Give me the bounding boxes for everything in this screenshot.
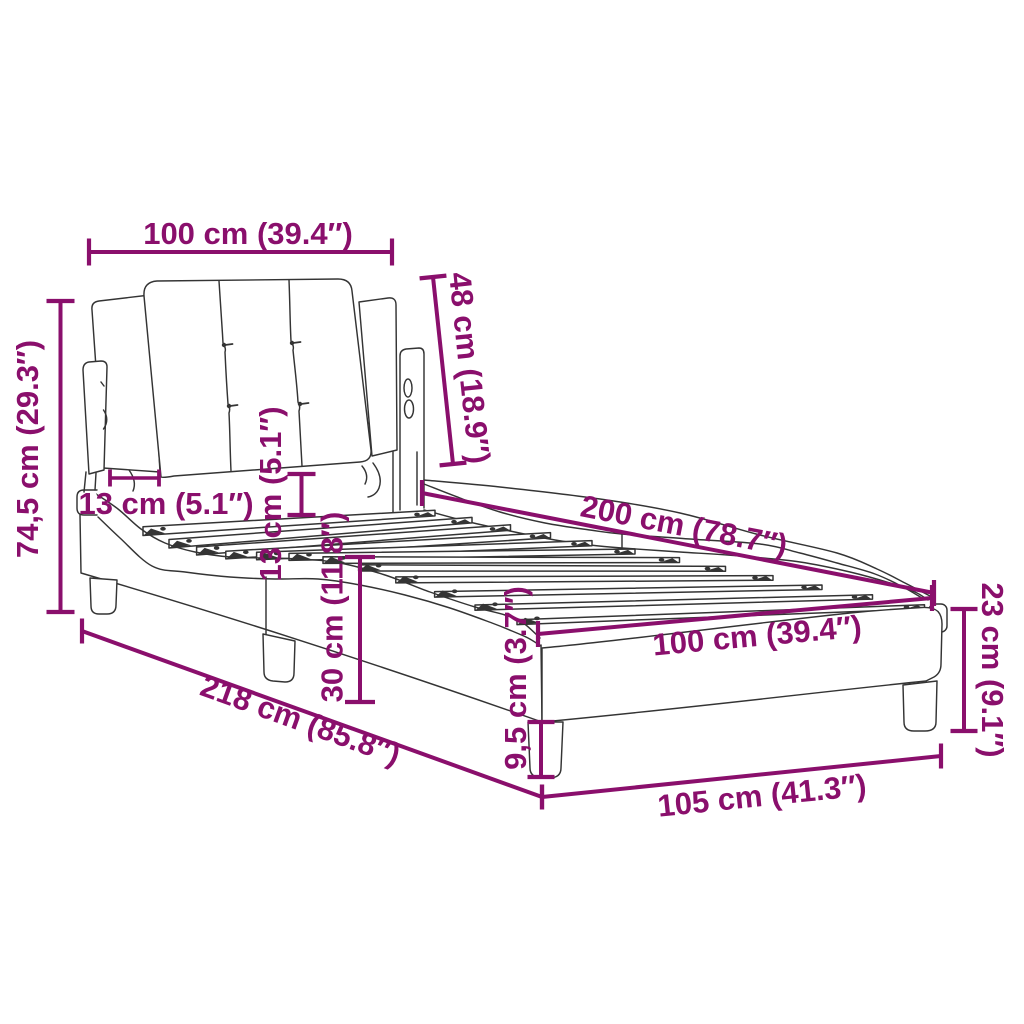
svg-text:23 cm (9.1″): 23 cm (9.1″) [975, 582, 1010, 757]
svg-text:74,5 cm (29.3″): 74,5 cm (29.3″) [10, 340, 45, 558]
svg-text:13 cm (5.1″): 13 cm (5.1″) [78, 486, 253, 521]
svg-text:9,5 cm (3.7″): 9,5 cm (3.7″) [498, 586, 533, 770]
svg-text:100 cm (39.4″): 100 cm (39.4″) [143, 216, 353, 251]
svg-text:13 cm (5.1″): 13 cm (5.1″) [253, 406, 288, 581]
svg-text:30 cm (11.8″): 30 cm (11.8″) [315, 512, 350, 703]
